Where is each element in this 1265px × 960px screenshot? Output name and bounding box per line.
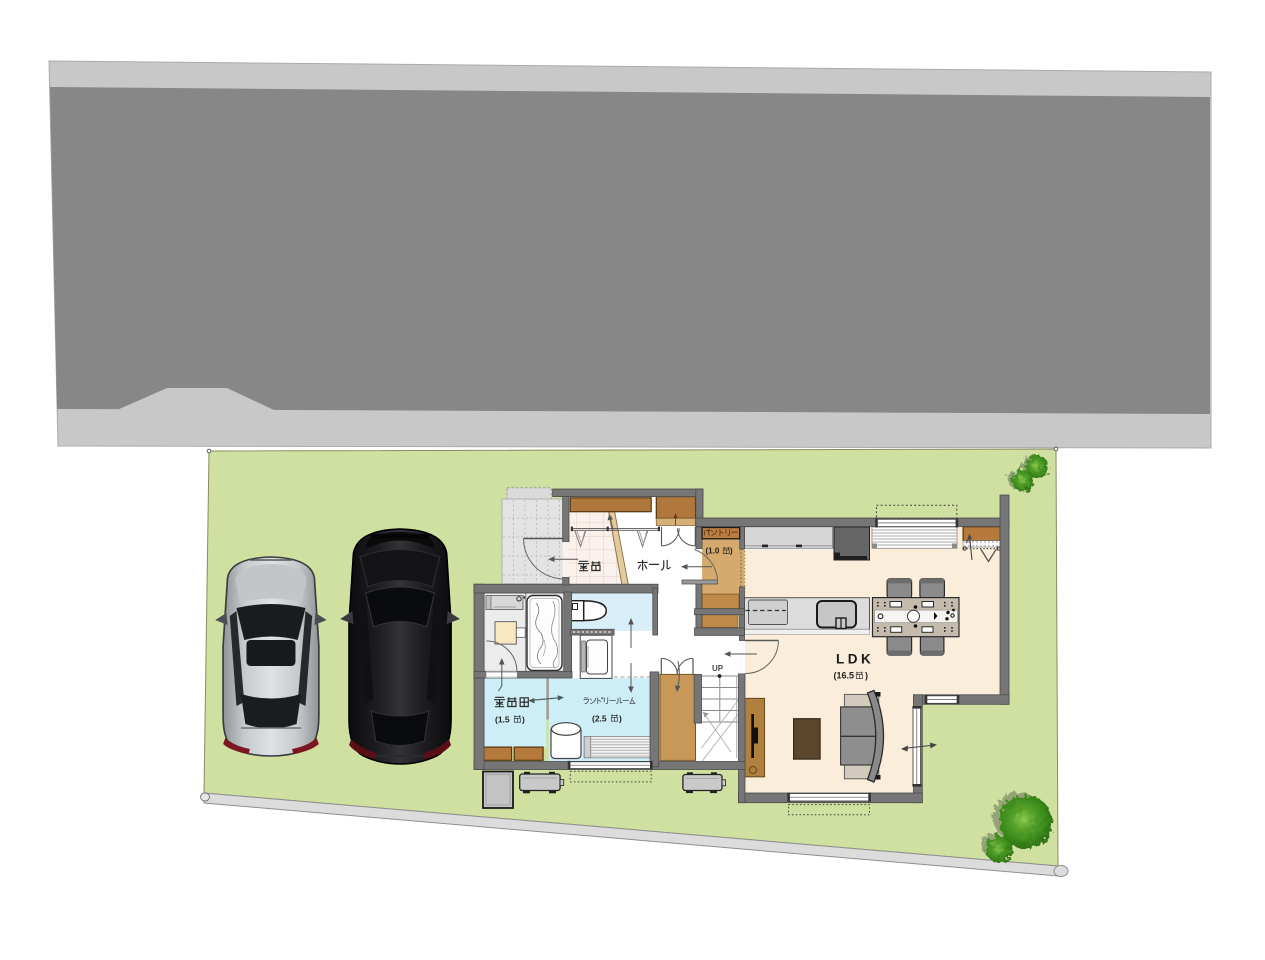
svg-text:): ) [522, 715, 525, 725]
svg-text:): ) [619, 714, 622, 724]
svg-text:): ) [730, 547, 733, 556]
svg-text:LDK: LDK [836, 652, 874, 667]
svg-text:(16.5: (16.5 [834, 671, 855, 681]
svg-text:(2.5: (2.5 [592, 714, 607, 724]
svg-text:): ) [865, 671, 868, 681]
svg-text:(1.5: (1.5 [495, 715, 510, 725]
svg-text:(1.0: (1.0 [706, 547, 720, 556]
svg-text:UP: UP [712, 664, 724, 673]
